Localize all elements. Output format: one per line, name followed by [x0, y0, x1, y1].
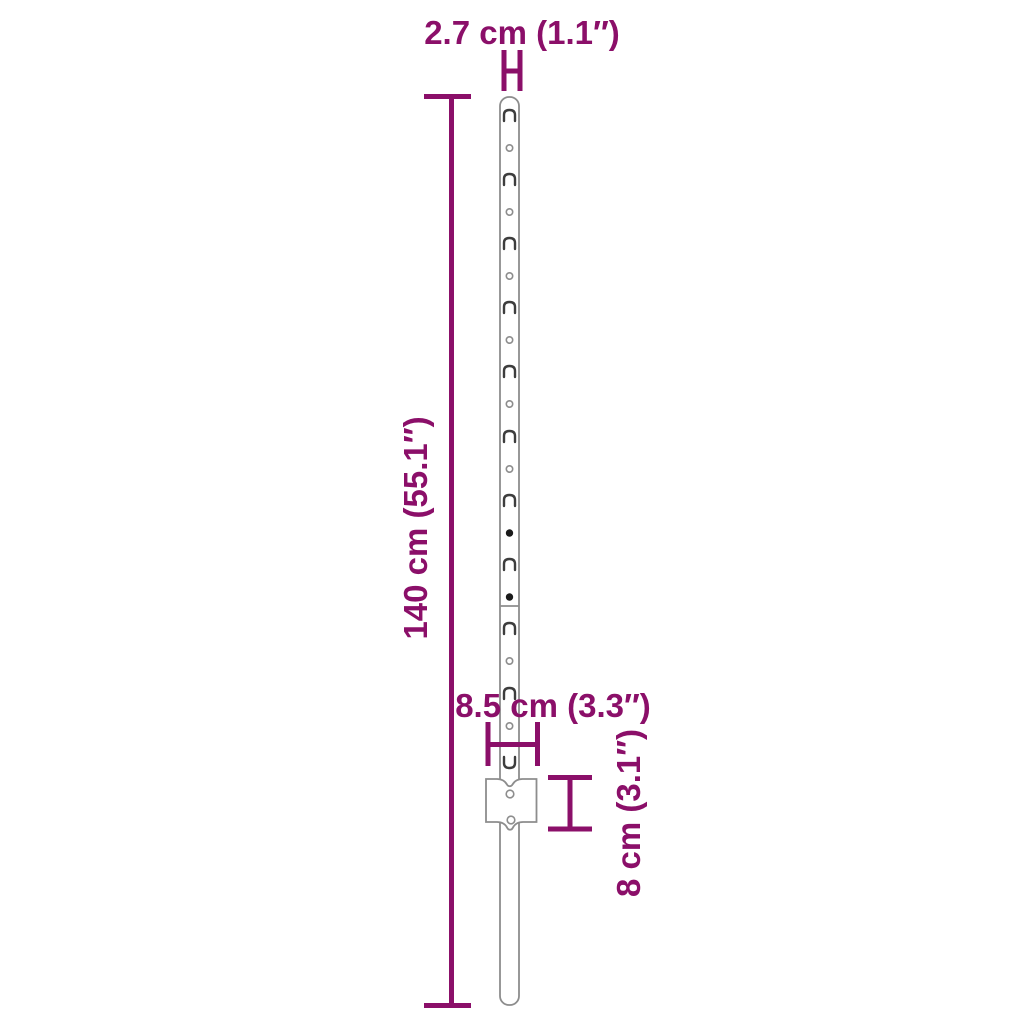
- post-body: [500, 97, 519, 1005]
- product-dimension-diagram: 2.7 cm (1.1″) 140 cm (55.1″) 8.5 cm (3.3…: [0, 0, 1024, 1024]
- dim-bracket-post-width: [504, 50, 520, 91]
- anchor-plate-group: [486, 779, 537, 830]
- mounting-hole: [506, 466, 512, 472]
- post-height-label: 140 cm (55.1″): [397, 416, 434, 639]
- anchor-plate-hole: [507, 816, 515, 824]
- anchor-width-label: 8.5 cm (3.3″): [455, 687, 651, 724]
- post-illustration: [500, 97, 519, 1005]
- dim-bracket-anchor-height: [548, 778, 592, 830]
- mounting-hole: [506, 273, 512, 279]
- mounting-hole: [506, 337, 512, 343]
- dimension-labels: 2.7 cm (1.1″) 140 cm (55.1″) 8.5 cm (3.3…: [397, 14, 651, 897]
- anchor-plate-hole: [506, 790, 514, 798]
- mounting-hole: [506, 401, 512, 407]
- mounting-hole: [506, 209, 512, 215]
- mounting-hole: [506, 145, 512, 151]
- fastener-dot: [506, 593, 513, 600]
- mounting-hole: [506, 658, 512, 664]
- fastener-dot: [506, 529, 513, 536]
- post-width-label: 2.7 cm (1.1″): [424, 14, 620, 51]
- diagram-svg: 2.7 cm (1.1″) 140 cm (55.1″) 8.5 cm (3.3…: [0, 0, 1024, 1024]
- anchor-height-label: 8 cm (3.1″): [610, 729, 647, 897]
